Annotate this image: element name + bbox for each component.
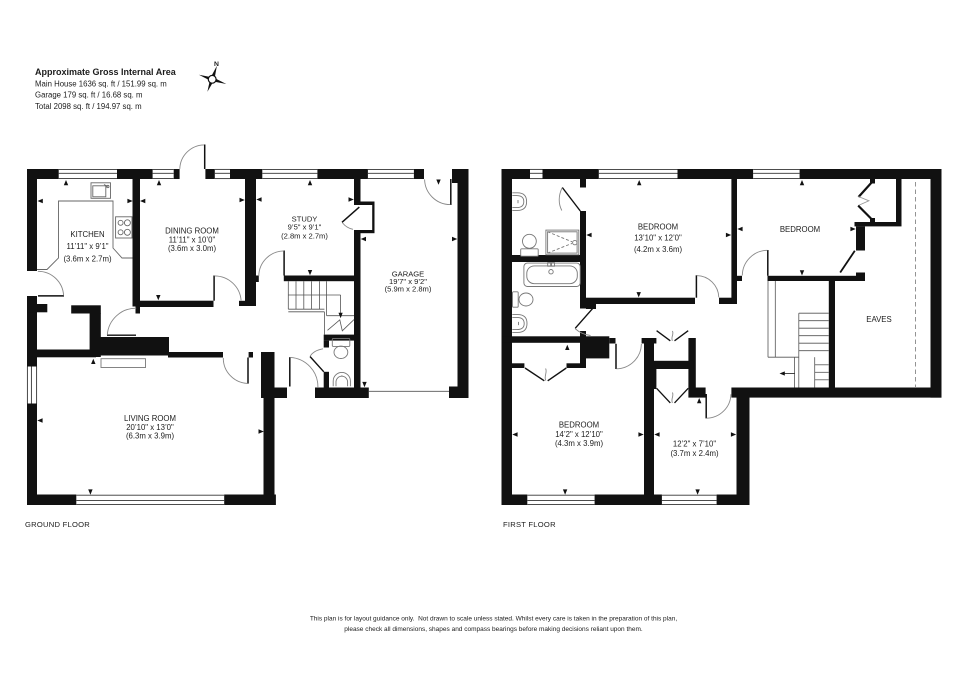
svg-text:14’2" x 12’10": 14’2" x 12’10" [555,430,603,439]
svg-text:Main House 1636 sq. ft / 151.9: Main House 1636 sq. ft / 151.99 sq. m [35,80,167,89]
svg-text:KITCHEN: KITCHEN [70,230,104,239]
svg-text:(4.2m x 3.6m): (4.2m x 3.6m) [634,245,682,254]
svg-text:12’2" x 7’10": 12’2" x 7’10" [673,440,716,449]
svg-text:BEDROOM: BEDROOM [780,225,820,234]
svg-text:please check all dimensions, s: please check all dimensions, shapes and … [344,626,643,633]
svg-text:EAVES: EAVES [866,315,891,324]
svg-text:13’10" x 12’0": 13’10" x 12’0" [634,234,682,243]
svg-text:Total 2098 sq. ft / 194.97 sq.: Total 2098 sq. ft / 194.97 sq. m [35,102,142,111]
svg-text:DINING ROOM: DINING ROOM [165,227,219,236]
svg-text:LIVING ROOM: LIVING ROOM [124,414,176,423]
svg-text:BEDROOM: BEDROOM [638,223,678,232]
svg-text:(3.6m x 2.7m): (3.6m x 2.7m) [63,255,111,264]
svg-text:(3.7m x 2.4m): (3.7m x 2.4m) [670,449,718,458]
svg-text:Approximate Gross Internal Are: Approximate Gross Internal Area [35,67,177,77]
svg-text:(4.3m x 3.9m): (4.3m x 3.9m) [555,439,603,448]
svg-text:11’11" x 9’1": 11’11" x 9’1" [66,242,108,251]
svg-text:BEDROOM: BEDROOM [559,421,599,430]
svg-text:(6.3m x 3.9m): (6.3m x 3.9m) [126,432,174,441]
svg-text:Garage 179 sq. ft / 16.68 sq.: Garage 179 sq. ft / 16.68 sq. m [35,91,143,100]
svg-text:(5.9m x 2.8m): (5.9m x 2.8m) [385,285,432,294]
svg-text:This plan is for layout guidan: This plan is for layout guidance only. N… [310,616,678,623]
svg-text:FIRST FLOOR: FIRST FLOOR [503,520,556,529]
svg-text:GROUND FLOOR: GROUND FLOOR [25,520,90,529]
svg-text:(3.6m x 3.0m): (3.6m x 3.0m) [168,244,216,253]
svg-text:(2.8m x 2.7m): (2.8m x 2.7m) [281,231,328,240]
svg-text:9’5" x 9’1": 9’5" x 9’1" [288,223,322,232]
